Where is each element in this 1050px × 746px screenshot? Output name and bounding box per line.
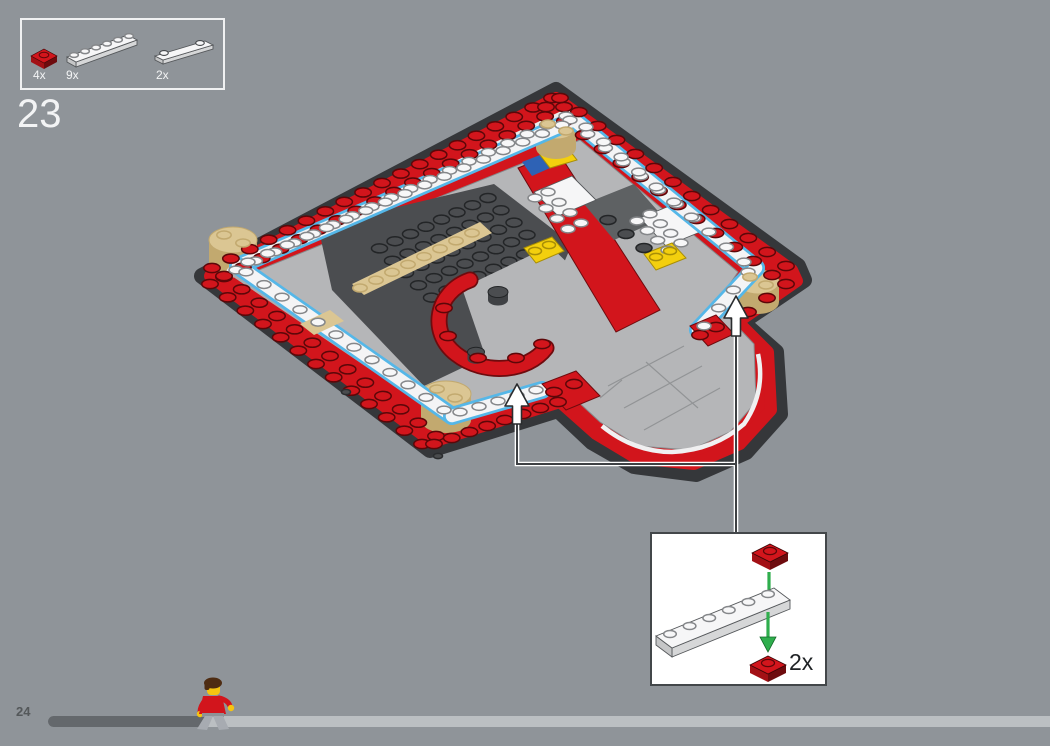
callout-quantity-label: 2x	[789, 649, 813, 676]
callout-leader-lines	[505, 296, 748, 532]
scene-svg	[0, 0, 1050, 746]
progress-fill	[48, 716, 208, 727]
progress-bar	[48, 716, 1050, 727]
lego-model-illustration	[202, 90, 804, 474]
instruction-page: 4x 9x 2x 23 2x 24	[0, 0, 1050, 746]
part-count-label: 4x	[33, 68, 46, 82]
step-number: 23	[17, 92, 62, 137]
part-count-label: 9x	[66, 68, 79, 82]
placement-arrow-icon	[724, 296, 748, 336]
part-count-label: 2x	[156, 68, 169, 82]
parts-inventory-box	[20, 18, 225, 90]
placement-arrow-icon	[505, 384, 529, 424]
page-number: 24	[16, 704, 30, 719]
